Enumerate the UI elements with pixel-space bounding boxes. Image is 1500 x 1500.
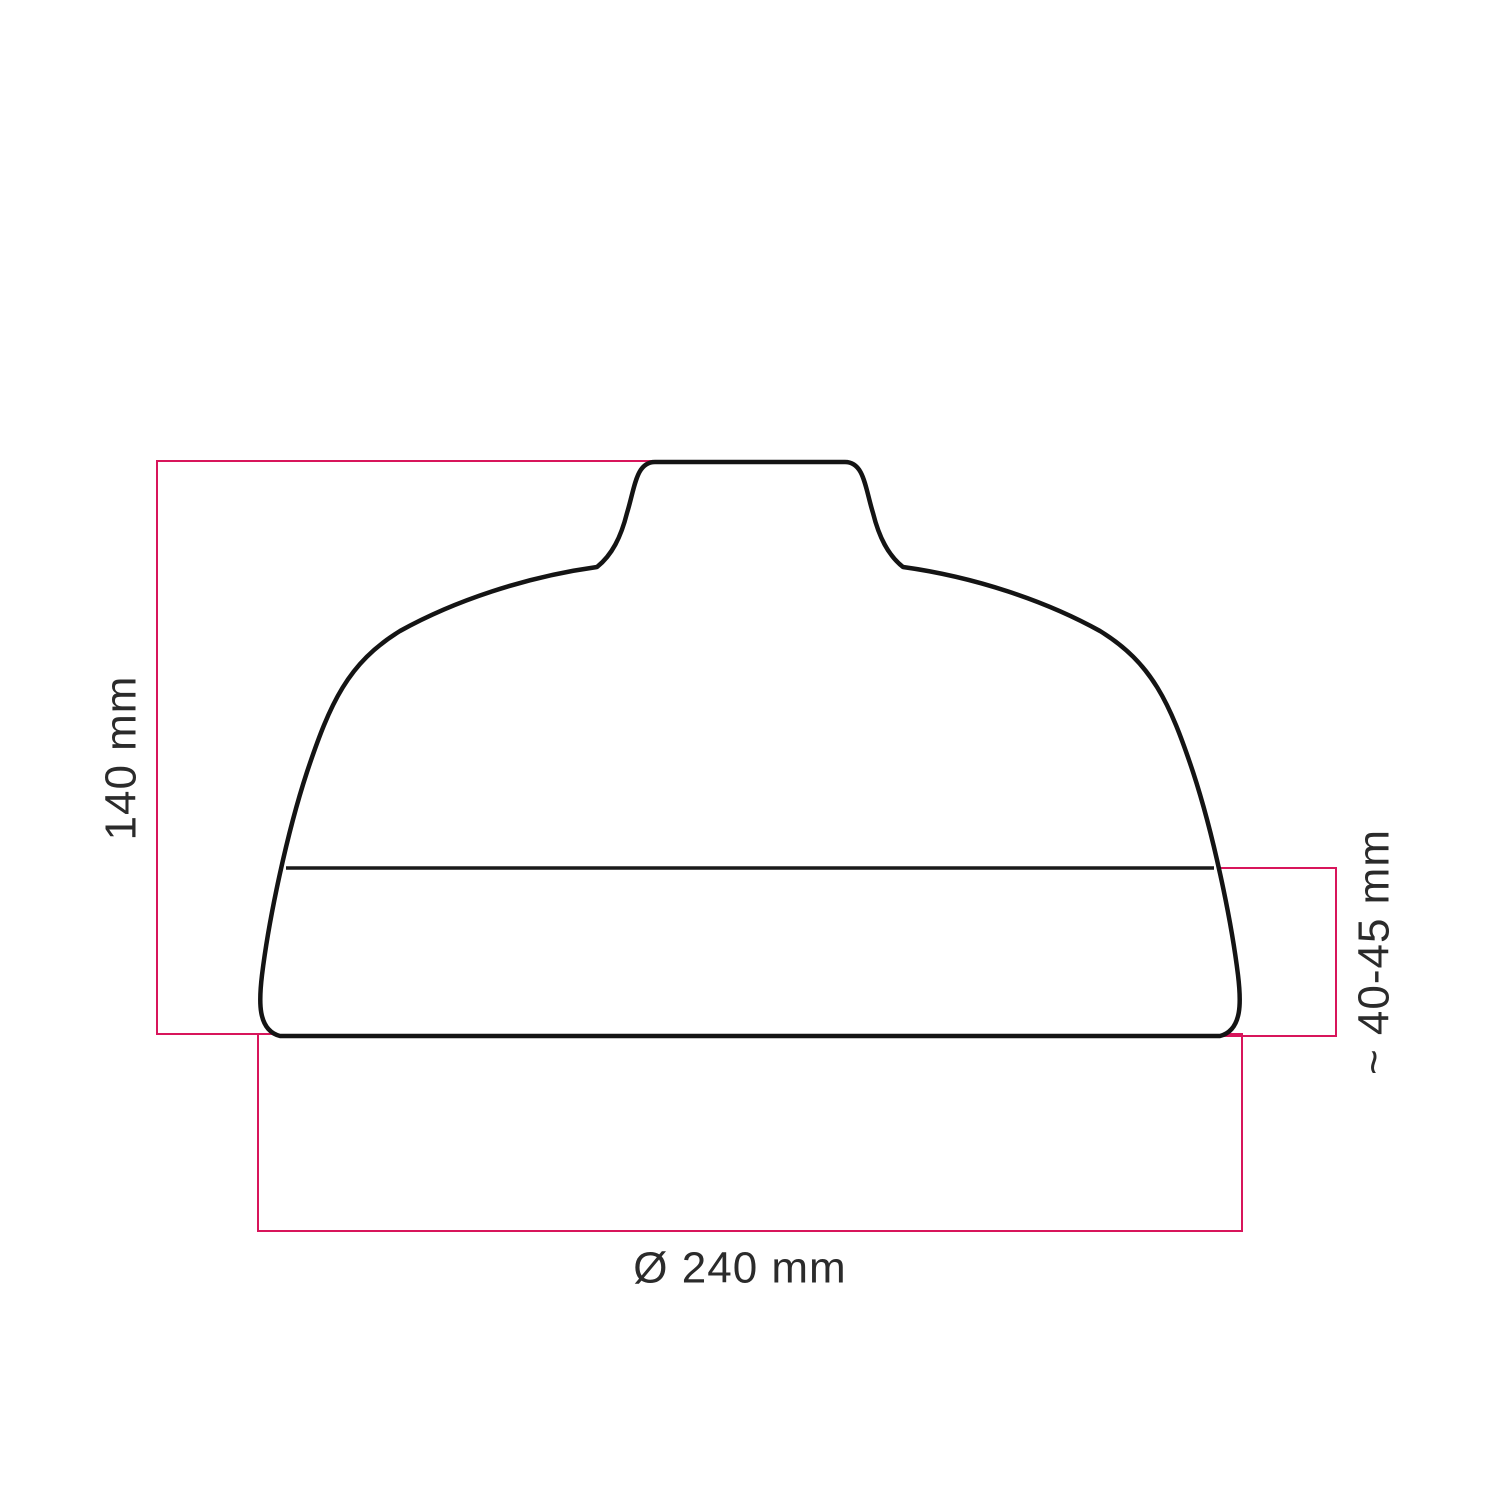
height-dimension-label: 140 mm	[97, 676, 146, 841]
band-dimension-label: ~ 40-45 mm	[1350, 829, 1399, 1075]
diameter-dimension-box	[258, 1034, 1242, 1231]
lampshade-outline	[260, 462, 1240, 1036]
lampshade-dimension-drawing: 140 mm ~ 40-45 mm Ø 240 mm	[0, 0, 1500, 1500]
diameter-dimension-label: Ø 240 mm	[633, 1244, 846, 1293]
dimension-diagram: 140 mm ~ 40-45 mm Ø 240 mm	[0, 0, 1500, 1500]
